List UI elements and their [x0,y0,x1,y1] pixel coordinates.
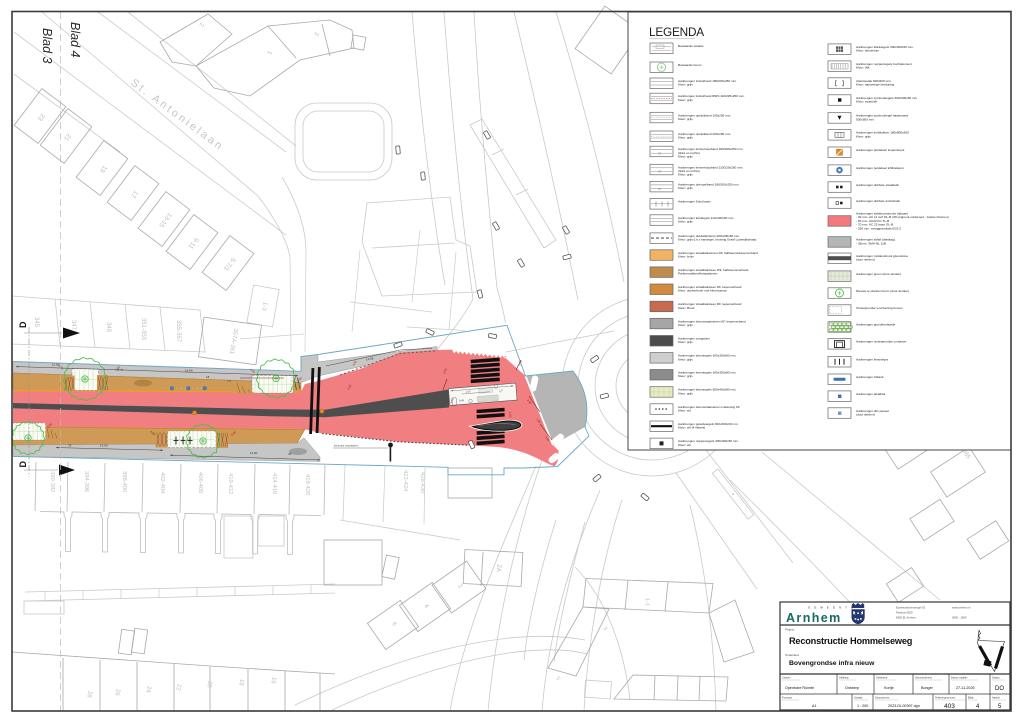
svg-text:349: 349 [105,322,111,333]
svg-text:LEGENDA: LEGENDA [649,25,704,39]
svg-text:Bestaande situatie: Bestaande situatie [678,44,704,48]
svg-text:Aanbrengen afvalbak: Aanbrengen afvalbak [856,392,886,396]
svg-text:Formaat:: Formaat: [782,696,793,700]
svg-text:Kleur: donkerbruin met kleurnu: Kleur: donkerbruin met kleurnuance [678,289,727,293]
svg-text:Datum uitgifte:: Datum uitgifte: [951,676,968,680]
svg-text:Kleur: wit: Kleur: wit [678,443,691,447]
svg-text:Aanbrengen dubbele straatkolk: Aanbrengen dubbele straatkolk [856,183,899,187]
svg-text:6800 EL Arnhem: 6800 EL Arnhem [896,616,917,620]
svg-text:Aanbrengen putdeksel infiltrat: Aanbrengen putdeksel infiltratieput [856,166,904,170]
svg-text:1-1: 1-1 [644,598,650,606]
svg-text:Blad 4: Blad 4 [68,22,82,57]
svg-text:G E M E E N T E: G E M E E N T E [808,606,855,610]
svg-text:Kleur: wit: Kleur: wit [678,409,691,413]
svg-text:- 250 mm. menggranulaat 0/31.5: - 250 mm. menggranulaat 0/31.5 [856,226,901,230]
svg-text:Kleur: wit (4 ribbels): Kleur: wit (4 ribbels) [678,426,705,430]
svg-text:4.00: 4.00 [508,412,512,418]
svg-text:Bovengrondse infra nieuw: Bovengrondse infra nieuw [789,660,875,667]
svg-text:D: D [18,461,28,468]
svg-text:Kleur: grijs: Kleur: grijs [678,186,693,190]
svg-text:410-412: 410-412 [227,473,233,494]
svg-text:07: 07 [658,170,662,174]
svg-text:402-404: 402-404 [159,472,165,494]
svg-text:D: D [18,321,28,328]
svg-text:- 35mm. SMA-NL 11B: - 35mm. SMA-NL 11B [856,241,886,245]
svg-text:Aanbrengen grond/teelaarde: Aanbrengen grond/teelaarde [856,323,896,327]
svg-text:(door derden): (door derden) [856,258,875,262]
svg-text:Aanbrengen groen (door derden): Aanbrengen groen (door derden) [856,272,901,276]
svg-text:Kortje: Kortje [884,686,894,690]
svg-text:A1: A1 [812,704,817,708]
svg-text:351-353: 351-353 [140,318,146,341]
svg-text:403: 403 [944,703,955,710]
svg-text:07: 07 [658,152,662,156]
svg-text:414-416: 414-416 [271,473,277,494]
svg-text:Schaal:: Schaal: [854,696,863,700]
svg-text:Bonger: Bonger [921,686,934,690]
svg-text:Cluster:: Cluster: [782,676,791,680]
svg-text:500x500 mm: 500x500 mm [856,117,874,121]
svg-text:Postbus 9029: Postbus 9029 [896,611,913,615]
svg-text:Aanbrengen Solid basis: Aanbrengen Solid basis [678,200,711,204]
svg-text:7x45: 7x45 [458,398,464,402]
svg-text:Parkeervakken/fietsparkeren: Parkeervakken/fietsparkeren [678,272,718,276]
svg-text:Arnhem: Arnhem [786,611,842,625]
svg-text:Kleur: grijs: Kleur: grijs [678,357,693,361]
svg-text:Nieuwe te planten boom (door d: Nieuwe te planten boom (door derden) [856,289,909,293]
svg-text:Afdeling:: Afdeling: [839,676,849,680]
svg-text:Kleur: bruin: Kleur: bruin [678,255,694,259]
svg-text:Aantal:: Aantal: [992,696,1000,700]
svg-text:(door derden): (door derden) [856,413,875,417]
svg-text:Kleur: aanwezige bestrating: Kleur: aanwezige bestrating [856,83,894,87]
svg-text:Blad 3: Blad 3 [40,28,54,63]
svg-text:394-396: 394-396 [83,471,89,492]
svg-text:345: 345 [33,317,39,328]
svg-text:Kleur: Rood: Kleur: Rood [678,306,695,310]
svg-text:390-392: 390-392 [49,471,55,492]
svg-text:Reconstructie Hommelseweg: Reconstructie Hommelseweg [789,636,912,646]
svg-text:Blad:: Blad: [968,696,974,700]
svg-text:Documentnr:: Documentnr: [875,696,890,700]
svg-text:Status:: Status: [992,676,1000,680]
svg-text:422-424: 422-424 [402,470,408,492]
svg-text:13.90: 13.90 [100,443,108,447]
svg-text:Aanbrengen ondergrondse contai: Aanbrengen ondergrondse container [856,340,906,344]
svg-text:Ontwerp: Ontwerp [845,686,859,690]
svg-text:Gecontroleerd:: Gecontroleerd: [915,676,932,680]
svg-text:Kleur: Wit: Kleur: Wit [856,66,870,70]
svg-text:Aanbrengen putdeksel inspectie: Aanbrengen putdeksel inspectieput [856,148,904,152]
svg-text:1 : 200: 1 : 200 [857,704,868,708]
svg-text:11.90: 11.90 [250,451,258,455]
svg-text:Kleur: grijs: Kleur: grijs [678,136,693,140]
svg-text:Kleur: zwart/wit: Kleur: zwart/wit [856,100,877,104]
svg-text:Kleur: grijs: Kleur: grijs [678,173,693,177]
svg-text:Project:: Project: [785,628,795,632]
svg-text:Kleur: grijs: Kleur: grijs [678,155,693,159]
svg-text:www.arnhem.nl: www.arnhem.nl [952,606,971,610]
svg-text:Aanbrengen zitbank: Aanbrengen zitbank [856,375,884,379]
svg-text:Kleur: grijs: Kleur: grijs [678,323,693,327]
svg-text:Aanbrengen dubbele trottoirkol: Aanbrengen dubbele trottoirkolk [856,199,900,203]
svg-text:Kleur: grijs: Kleur: grijs [678,391,693,395]
svg-text:Bestaande boom: Bestaande boom [678,63,702,67]
svg-text:Kleur: aluminium: Kleur: aluminium [856,49,879,53]
svg-text:78: 78 [68,443,72,447]
svg-text:Kleur: grijs: Kleur: grijs [678,374,693,378]
svg-text:Onderdeel:: Onderdeel: [785,653,799,657]
svg-text:14.06: 14.06 [185,369,193,373]
svg-text:2A: 2A [495,564,503,573]
svg-text:Kleur: grijs: Kleur: grijs [678,220,693,224]
svg-text:Ondergrondse voorziening bomen: Ondergrondse voorziening bomen [856,306,903,310]
svg-text:406-408: 406-408 [197,472,203,493]
svg-text:Kleur: grijs: Kleur: grijs [856,134,871,138]
svg-text:Kleur: grijs (t.b.v kanttegel,: Kleur: grijs (t.b.v kanttegel, kruising … [678,238,756,242]
svg-text:398-400: 398-400 [121,471,127,492]
svg-text:Tekeningnummer:: Tekeningnummer: [935,696,956,700]
svg-text:Kleur: grijs: Kleur: grijs [678,83,693,87]
svg-text:07: 07 [658,187,662,191]
svg-text:2023-DI-00397.dgn: 2023-DI-00397.dgn [888,704,920,708]
svg-text:78: 78 [288,452,292,456]
svg-text:355-357: 355-357 [175,320,181,343]
svg-text:18: 18 [206,375,210,379]
svg-text:DO: DO [995,686,1004,692]
svg-text:Kleur: grijs: Kleur: grijs [678,98,693,102]
svg-text:428-430: 428-430 [419,472,425,493]
svg-text:27-11-2025: 27-11-2025 [956,686,975,690]
svg-text:Getekend:: Getekend: [876,676,888,680]
svg-text:347: 347 [70,320,76,331]
svg-text:0800 - 1809: 0800 - 1809 [952,616,967,620]
svg-text:Eusebiusbuitensingel 53: Eusebiusbuitensingel 53 [896,606,926,610]
svg-text:418-420: 418-420 [304,474,310,495]
svg-text:Aanbrengen fietsnietjes: Aanbrengen fietsnietjes [856,358,889,362]
svg-text:lichtmast verplaatsen: lichtmast verplaatsen [334,444,359,448]
svg-text:Kleur: grijs: Kleur: grijs [678,340,693,344]
svg-text:7.0: 7.0 [227,379,231,383]
svg-text:Openbare Ruimte: Openbare Ruimte [785,686,814,690]
svg-text:Kleur: grijs: Kleur: grijs [678,117,693,121]
